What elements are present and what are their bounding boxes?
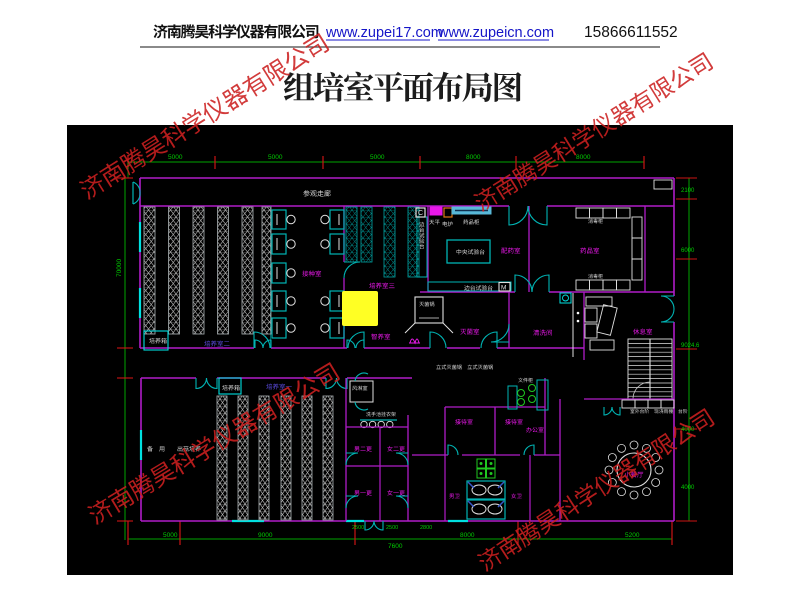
svg-text:4000: 4000: [681, 427, 695, 433]
svg-text:70000: 70000: [116, 259, 123, 277]
svg-text:2500: 2500: [386, 525, 398, 531]
svg-text:5200: 5200: [625, 532, 640, 539]
svg-text:8000: 8000: [460, 532, 475, 539]
svg-text:5000: 5000: [370, 154, 385, 161]
svg-text:5000: 5000: [168, 154, 183, 161]
svg-text:2500: 2500: [352, 525, 364, 531]
svg-text:15866611552: 15866611552: [584, 24, 678, 41]
svg-text:2100: 2100: [681, 188, 695, 194]
svg-text:9024.6: 9024.6: [681, 343, 700, 349]
svg-text:8000: 8000: [466, 154, 481, 161]
svg-text:www.zupei17.com: www.zupei17.com: [325, 25, 443, 41]
svg-text:8000: 8000: [576, 154, 591, 161]
svg-text:www.zupeicn.com: www.zupeicn.com: [437, 25, 554, 41]
svg-text:7600: 7600: [388, 543, 403, 550]
svg-text:M: M: [501, 285, 506, 292]
svg-text:9000: 9000: [258, 532, 273, 539]
svg-text:6000: 6000: [681, 248, 695, 254]
svg-text:C: C: [418, 210, 423, 217]
svg-text:2800: 2800: [420, 525, 432, 531]
svg-text:4000: 4000: [681, 485, 695, 491]
svg-text:5000: 5000: [268, 154, 283, 161]
svg-text:5000: 5000: [163, 532, 178, 539]
